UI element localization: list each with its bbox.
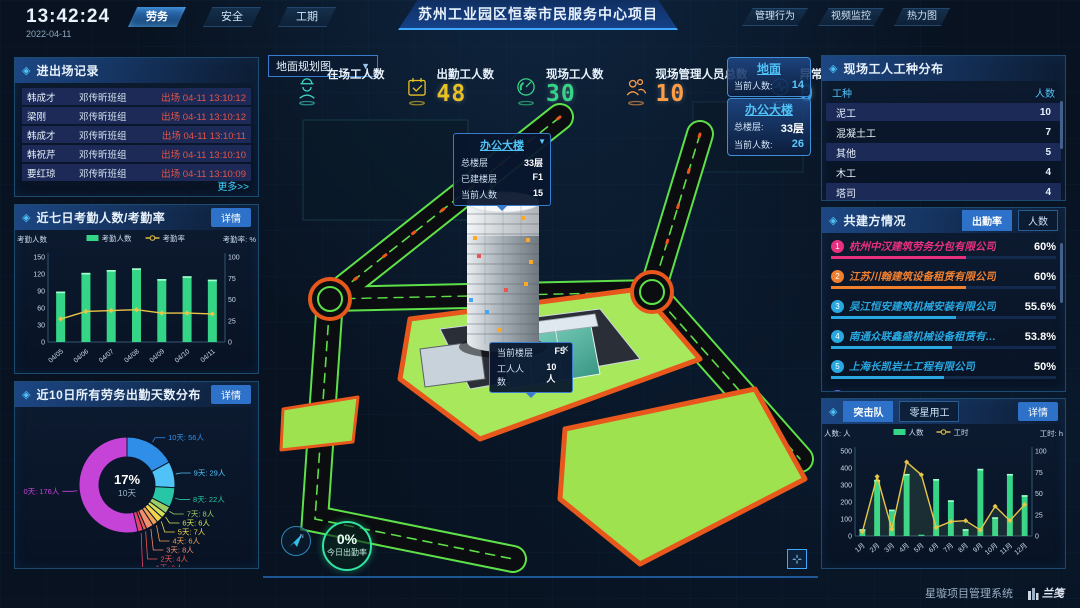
svg-text:10天: 10天: [118, 488, 136, 498]
entry-exit-list: 韩成才 邓传昕班组 出场 04-11 13:10:12 梁刚 邓传昕班组 出场 …: [15, 83, 258, 181]
svg-text:75: 75: [1035, 470, 1043, 477]
svg-text:12月: 12月: [1013, 541, 1029, 556]
worker-type-row: 其他 5: [826, 143, 1061, 161]
tip-label: 当前楼层: [497, 346, 533, 359]
brand-logo: 兰笺: [1027, 585, 1064, 601]
partner-name: 南通众联鑫盛机械设备租赁有限公司: [849, 329, 1004, 344]
panel-attendance-days-distribution: ◈ 近10日所有劳务出勤天数分布 详情 10天: 56人9天: 29人8天: 2…: [14, 381, 259, 569]
tab-headcount[interactable]: 人数: [1018, 210, 1058, 231]
svg-text:工时: h: 工时: h: [1040, 428, 1063, 438]
svg-text:04/09: 04/09: [149, 348, 167, 364]
panel-worker-types: ◈ 现场工人工种分布 工种 人数 泥工 10 混凝土工 7 其他 5 木工 4 …: [821, 55, 1066, 201]
svg-text:工时: 工时: [954, 427, 969, 437]
svg-text:50: 50: [228, 297, 236, 304]
more-link[interactable]: 更多>>: [217, 178, 249, 193]
worker-icon: [292, 66, 322, 108]
scrollbar[interactable]: [1060, 101, 1063, 149]
svg-text:04/08: 04/08: [123, 348, 141, 364]
panel-title: 共建方情况: [843, 212, 906, 229]
info-label: 当前人数:: [734, 79, 773, 92]
svg-text:10月: 10月: [983, 541, 999, 556]
detail-button[interactable]: 详情: [211, 208, 251, 227]
svg-text:考勤率: %: 考勤率: %: [223, 234, 257, 244]
svg-text:5月: 5月: [912, 541, 925, 554]
rank-badge: 6: [831, 390, 844, 392]
panel-title: 近10日所有劳务出勤天数分布: [36, 386, 200, 403]
svg-text:25: 25: [228, 318, 236, 325]
partner-item[interactable]: 5 上海长凯岩土工程有限公司 50%: [831, 357, 1056, 386]
page-title-banner: 苏州工业园区恒泰市民服务中心项目: [398, 0, 678, 30]
info-label: 当前人数:: [734, 138, 773, 151]
partner-item[interactable]: 3 吴江恒安建筑机械安装有限公司 55.6%: [831, 297, 1056, 326]
worker-type: 泥工: [836, 105, 856, 120]
svg-text:9天: 29人: 9天: 29人: [194, 468, 226, 477]
worker-count: 5: [1045, 147, 1051, 158]
svg-text:04/07: 04/07: [98, 348, 116, 364]
progress-fill: [831, 376, 944, 379]
attendance-label: 今日出勤率: [324, 547, 370, 558]
svg-text:2天: 4人: 2天: 4人: [161, 555, 189, 564]
progress-track: [831, 376, 1056, 379]
svg-text:1月: 1月: [853, 541, 866, 554]
svg-text:10天: 56人: 10天: 56人: [168, 433, 204, 442]
svg-text:90: 90: [37, 289, 45, 296]
system-name: 星璇项目管理系统: [925, 585, 1013, 601]
close-icon[interactable]: ✕: [561, 344, 569, 355]
worker-name: 韩祝芹: [27, 147, 79, 161]
tip-label: 工人人数: [497, 362, 532, 388]
info-value: 26: [792, 138, 804, 151]
stat-label: 现场工人数: [546, 66, 604, 82]
calendar-check-icon: [402, 66, 432, 108]
col-header-count: 人数: [1035, 85, 1055, 100]
partner-pct: 35.4%: [1025, 391, 1056, 393]
tab-video-monitor[interactable]: 视频监控: [818, 8, 884, 26]
partner-pct: 60%: [1034, 271, 1056, 283]
svg-text:9月: 9月: [971, 541, 984, 554]
clock-date: 2022-04-11: [26, 29, 110, 39]
info-box-title: 办公大楼: [734, 101, 804, 118]
svg-text:3月: 3月: [883, 541, 896, 554]
svg-text:100: 100: [228, 255, 240, 262]
svg-text:考勤人数: 考勤人数: [102, 233, 132, 243]
floor-tooltip: ✕ 当前楼层F5 工人人数10人: [489, 342, 573, 393]
exit-event: 出场 04-11 13:10:10: [161, 147, 246, 161]
svg-text:7天: 8人: 7天: 8人: [187, 510, 215, 519]
info-value: 33层: [781, 120, 804, 136]
svg-text:2月: 2月: [868, 541, 881, 554]
svg-text:人数: 人: 人数: 人: [824, 428, 851, 438]
tab-safety[interactable]: 安全: [203, 7, 261, 27]
rank-badge: 5: [831, 360, 844, 373]
worker-type-row: 混凝土工 7: [826, 123, 1061, 141]
svg-text:100: 100: [840, 517, 852, 524]
panel-title: 近七日考勤人数/考勤率: [36, 209, 165, 226]
exit-event: 出场 04-11 13:10:12: [161, 109, 246, 123]
svg-text:4天: 6人: 4天: 6人: [172, 537, 200, 546]
team-name: 邓传昕班组: [79, 147, 161, 161]
attendance-7d-chart: 03060901201500255075100考勤人数考勤率: %考勤人数考勤率…: [15, 230, 258, 372]
svg-text:考勤人数: 考勤人数: [17, 234, 47, 244]
worker-count: 4: [1045, 187, 1051, 198]
tab-management-behavior[interactable]: 管理行为: [742, 8, 808, 26]
stat-value: 30: [546, 82, 604, 106]
progress-fill: [831, 316, 956, 319]
progress-fill: [831, 346, 952, 349]
entry-exit-row: 韩成才 邓传昕班组 出场 04-11 13:10:11: [22, 126, 251, 143]
clock-time: 13:42:24: [26, 6, 110, 28]
partner-item[interactable]: 6 江苏洁治建筑安装工程有限公司 35.4%: [831, 387, 1056, 392]
brand-logo-text: 兰笺: [1042, 585, 1064, 601]
clock: 13:42:24 2022-04-11: [26, 6, 110, 39]
stat-value: 48: [437, 82, 495, 106]
svg-text:8月: 8月: [957, 541, 970, 554]
svg-text:6天: 6人: 6天: 6人: [182, 519, 210, 528]
rank-badge: 2: [831, 270, 844, 283]
tab-schedule[interactable]: 工期: [278, 7, 336, 27]
panel-squad: ◈ 突击队 零星用工 详情 01002003004005000255075100…: [821, 398, 1066, 569]
svg-text:0: 0: [848, 534, 852, 541]
partner-name: 江苏川翰建筑设备租赁有限公司: [849, 269, 996, 284]
worker-name: 韩成才: [27, 128, 79, 142]
svg-text:04/10: 04/10: [174, 348, 192, 364]
progress-fill: [831, 286, 966, 289]
detail-button[interactable]: 详情: [1018, 402, 1058, 421]
partner-pct: 53.8%: [1025, 331, 1056, 343]
progress-track: [831, 286, 1056, 289]
squad-monthly-chart: 01002003004005000255075100人数: 人工时: h人数工时…: [822, 424, 1065, 566]
stat-site-workers: 现场工人数 30: [511, 66, 604, 108]
tip-label: 总楼层: [461, 156, 488, 169]
svg-text:0天: 176人: 0天: 176人: [24, 487, 60, 496]
svg-text:考勤率: 考勤率: [163, 233, 186, 243]
worker-type-row: 塔司 4: [826, 183, 1061, 201]
info-value: 14: [792, 79, 804, 92]
svg-text:04/06: 04/06: [73, 348, 91, 364]
worker-name: 要红琼: [27, 166, 79, 180]
chevron-down-icon[interactable]: ▼: [538, 137, 546, 146]
stat-label: 出勤工人数: [437, 66, 495, 82]
partner-name: 杭州中汉建筑劳务分包有限公司: [849, 239, 996, 254]
svg-text:人数: 人数: [909, 427, 924, 437]
diamond-icon: ◈: [829, 405, 837, 418]
team-name: 邓传昕班组: [79, 128, 162, 142]
tab-heatmap[interactable]: 热力图: [894, 8, 950, 26]
rank-badge: 3: [831, 300, 844, 313]
attendance-pct: 0%: [324, 531, 370, 547]
svg-text:500: 500: [840, 449, 852, 456]
worker-types-header: 工种 人数: [822, 81, 1065, 103]
svg-text:17%: 17%: [114, 472, 140, 487]
info-box-ground[interactable]: 地面 当前人数:14: [727, 57, 811, 97]
svg-text:50: 50: [1035, 491, 1043, 498]
tip-value: 10人: [546, 362, 565, 388]
worker-type-row: 泥工 10: [826, 103, 1061, 121]
partner-pct: 50%: [1034, 361, 1056, 373]
svg-text:04/11: 04/11: [199, 348, 216, 364]
worker-types-list: 泥工 10 混凝土工 7 其他 5 木工 4 塔司 4: [822, 103, 1065, 201]
panel-entry-exit: ◈ 进出场记录 韩成才 邓传昕班组 出场 04-11 13:10:12 梁刚 邓…: [14, 57, 259, 197]
progress-track: [831, 346, 1056, 349]
page-title: 苏州工业园区恒泰市民服务中心项目: [418, 6, 658, 22]
progress-track: [831, 316, 1056, 319]
svg-text:6月: 6月: [927, 541, 940, 554]
exit-event: 出场 04-11 13:10:12: [161, 90, 246, 104]
rank-badge: 1: [831, 240, 844, 253]
info-box-office-building[interactable]: 办公大楼 总楼层:33层 当前人数:26: [727, 98, 811, 156]
tip-label: 当前人数: [461, 188, 497, 201]
tip-value: 33层: [524, 156, 543, 169]
svg-text:300: 300: [840, 483, 852, 490]
worker-name: 梁刚: [27, 109, 79, 123]
team-name: 邓传昕班组: [79, 166, 161, 180]
worker-type-row: 木工 4: [826, 163, 1061, 181]
gauge-icon: [511, 66, 541, 108]
progress-track: [831, 256, 1056, 259]
svg-text:75: 75: [228, 276, 236, 283]
partners-list: 1 杭州中汉建筑劳务分包有限公司 60% 2 江苏川翰建筑设备租赁有限公司 60…: [822, 233, 1065, 392]
worker-count: 7: [1045, 127, 1051, 138]
entry-exit-row: 韩祝芹 邓传昕班组 出场 04-11 13:10:10: [22, 145, 251, 162]
tab-labor[interactable]: 劳务: [128, 7, 186, 27]
panel-attendance-7d: ◈ 近七日考勤人数/考勤率 详情 03060901201500255075100…: [14, 204, 259, 374]
diamond-icon: ◈: [22, 64, 30, 77]
svg-text:11月: 11月: [998, 541, 1014, 556]
tip-label: 已建楼层: [461, 172, 497, 185]
svg-text:04/05: 04/05: [47, 348, 65, 364]
info-label: 总楼层:: [734, 120, 764, 136]
svg-text:N: N: [300, 534, 304, 540]
info-box-title: 地面: [734, 60, 804, 77]
building-logo-icon: [1027, 587, 1039, 600]
svg-text:100: 100: [1035, 449, 1047, 456]
partner-item[interactable]: 1 杭州中汉建筑劳务分包有限公司 60%: [831, 237, 1056, 266]
partner-name: 吴江恒安建筑机械安装有限公司: [849, 299, 996, 314]
diamond-icon: ◈: [22, 211, 30, 224]
partner-item[interactable]: 2 江苏川翰建筑设备租赁有限公司 60%: [831, 267, 1056, 296]
panel-partners: ◈ 共建方情况 出勤率 人数 1 杭州中汉建筑劳务分包有限公司 60% 2 江苏…: [821, 207, 1066, 392]
svg-text:0: 0: [41, 340, 45, 347]
diamond-icon: ◈: [22, 388, 30, 401]
worker-type: 其他: [836, 145, 856, 160]
col-header-type: 工种: [832, 85, 852, 100]
footer: 星璇项目管理系统 兰笺: [925, 585, 1064, 601]
worker-type: 塔司: [836, 185, 856, 200]
svg-text:400: 400: [840, 466, 852, 473]
panel-title: 现场工人工种分布: [843, 60, 943, 77]
team-name: 邓传昕班组: [79, 109, 161, 123]
tab-odd-jobs[interactable]: 零星用工: [899, 401, 959, 422]
entry-exit-row: 韩成才 邓传昕班组 出场 04-11 13:10:12: [22, 88, 251, 105]
svg-text:120: 120: [33, 272, 45, 279]
building-tooltip-title[interactable]: 办公大楼: [461, 137, 543, 153]
svg-text:60: 60: [37, 306, 45, 313]
svg-text:7月: 7月: [942, 541, 955, 554]
partner-pct: 55.6%: [1025, 301, 1056, 313]
entry-exit-row: 梁刚 邓传昕班组 出场 04-11 13:10:12: [22, 107, 251, 124]
partner-pct: 60%: [1034, 241, 1056, 253]
scrollbar[interactable]: [1060, 243, 1063, 303]
worker-count: 4: [1045, 167, 1051, 178]
svg-text:25: 25: [1035, 512, 1043, 519]
partner-name: 江苏洁治建筑安装工程有限公司: [849, 389, 996, 392]
tab-attendance-rate[interactable]: 出勤率: [962, 210, 1012, 231]
panel-title: 进出场记录: [36, 62, 99, 79]
worker-type: 混凝土工: [836, 125, 876, 140]
exit-event: 出场 04-11 13:10:11: [162, 128, 246, 142]
partner-name: 上海长凯岩土工程有限公司: [849, 359, 975, 374]
compass-icon[interactable]: N: [281, 526, 311, 556]
worker-type: 木工: [836, 165, 856, 180]
fullscreen-icon[interactable]: ⊹: [787, 549, 807, 569]
tab-squad[interactable]: 突击队: [843, 401, 893, 422]
partner-item[interactable]: 4 南通众联鑫盛机械设备租赁有限公司 53.8%: [831, 327, 1056, 356]
svg-text:150: 150: [33, 255, 45, 262]
svg-text:0: 0: [1035, 534, 1039, 541]
svg-text:0: 0: [228, 340, 232, 347]
diamond-icon: ◈: [829, 62, 837, 75]
svg-text:200: 200: [840, 500, 852, 507]
worker-name: 韩成才: [27, 90, 79, 104]
svg-text:8天: 22人: 8天: 22人: [193, 495, 225, 504]
diamond-icon: ◈: [829, 214, 837, 227]
tip-value: F1: [532, 172, 543, 185]
tip-value: 15: [533, 188, 543, 201]
svg-text:4月: 4月: [898, 541, 911, 554]
people-icon: [621, 66, 651, 108]
svg-text:30: 30: [37, 323, 45, 330]
svg-text:1天: 6人: 1天: 6人: [156, 564, 184, 567]
team-name: 邓传昕班组: [79, 90, 161, 104]
today-attendance-circle: 0% 今日出勤率: [322, 521, 372, 571]
worker-count: 10: [1040, 107, 1051, 118]
building-tooltip: 办公大楼 ▼ 总楼层33层 已建楼层F1 当前人数15: [453, 133, 551, 206]
progress-fill: [831, 256, 966, 259]
rank-badge: 4: [831, 330, 844, 343]
stat-onsite-workers: 在场工人数: [292, 66, 385, 108]
stat-label: 在场工人数: [327, 66, 385, 82]
svg-text:3天: 8人: 3天: 8人: [166, 546, 194, 555]
detail-button[interactable]: 详情: [211, 385, 251, 404]
svg-text:5天: 7人: 5天: 7人: [178, 528, 206, 537]
attendance-days-donut-chart: 10天: 56人9天: 29人8天: 22人7天: 8人6天: 6人5天: 7人…: [15, 407, 258, 567]
stat-attending-workers: 出勤工人数 48: [402, 66, 495, 108]
